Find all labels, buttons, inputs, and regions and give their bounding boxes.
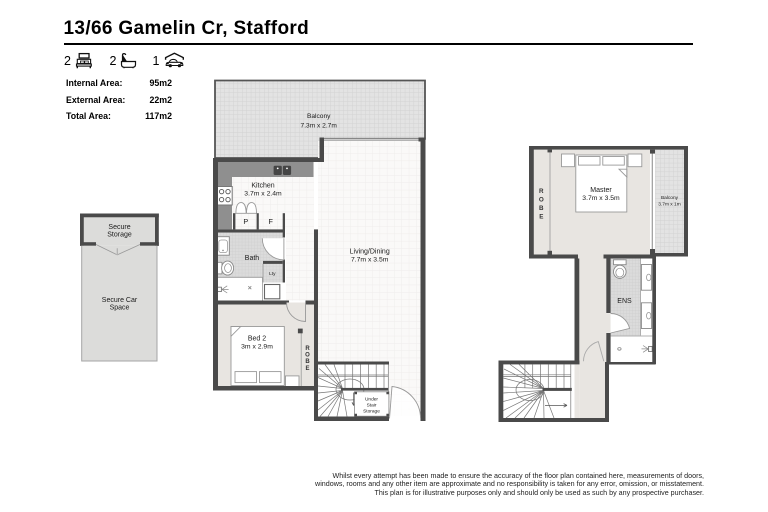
svg-text:Balcony: Balcony <box>307 113 331 120</box>
svg-text:Storage: Storage <box>107 232 132 239</box>
svg-text:Living/Dining: Living/Dining <box>350 249 390 256</box>
svg-text:Bed 2: Bed 2 <box>248 335 266 342</box>
svg-text:B: B <box>305 359 310 365</box>
svg-text:3.7m x 1m: 3.7m x 1m <box>658 201 680 207</box>
svg-text:7.7m x 3.5m: 7.7m x 3.5m <box>351 257 389 264</box>
svg-text:O: O <box>539 197 544 204</box>
svg-text:O: O <box>305 353 310 359</box>
svg-text:R: R <box>539 188 544 195</box>
svg-text:B: B <box>539 205 544 212</box>
svg-text:F: F <box>269 217 274 226</box>
svg-text:3.7m x 3.5m: 3.7m x 3.5m <box>582 195 620 202</box>
svg-text:Space: Space <box>110 304 130 311</box>
svg-text:E: E <box>305 366 309 372</box>
svg-text:E: E <box>539 214 543 221</box>
svg-text:7.3m x 2.7m: 7.3m x 2.7m <box>301 122 338 129</box>
svg-text:Bath: Bath <box>245 255 260 262</box>
svg-text:Kitchen: Kitchen <box>251 182 274 189</box>
svg-text:P: P <box>243 217 248 226</box>
svg-text:Secure: Secure <box>108 224 130 231</box>
svg-text:Stair: Stair <box>367 403 377 409</box>
svg-text:R: R <box>305 346 310 352</box>
svg-text:3.7m x 2.4m: 3.7m x 2.4m <box>244 190 282 197</box>
svg-text:Balcony: Balcony <box>661 195 679 201</box>
svg-text:Lty: Lty <box>269 271 276 277</box>
svg-text:3m x 2.9m: 3m x 2.9m <box>241 343 273 350</box>
svg-text:Master: Master <box>590 187 612 194</box>
svg-text:ENS: ENS <box>617 298 632 305</box>
svg-text:Storage: Storage <box>363 409 380 415</box>
svg-text:Under: Under <box>365 397 378 403</box>
svg-text:Secure Car: Secure Car <box>102 297 138 304</box>
